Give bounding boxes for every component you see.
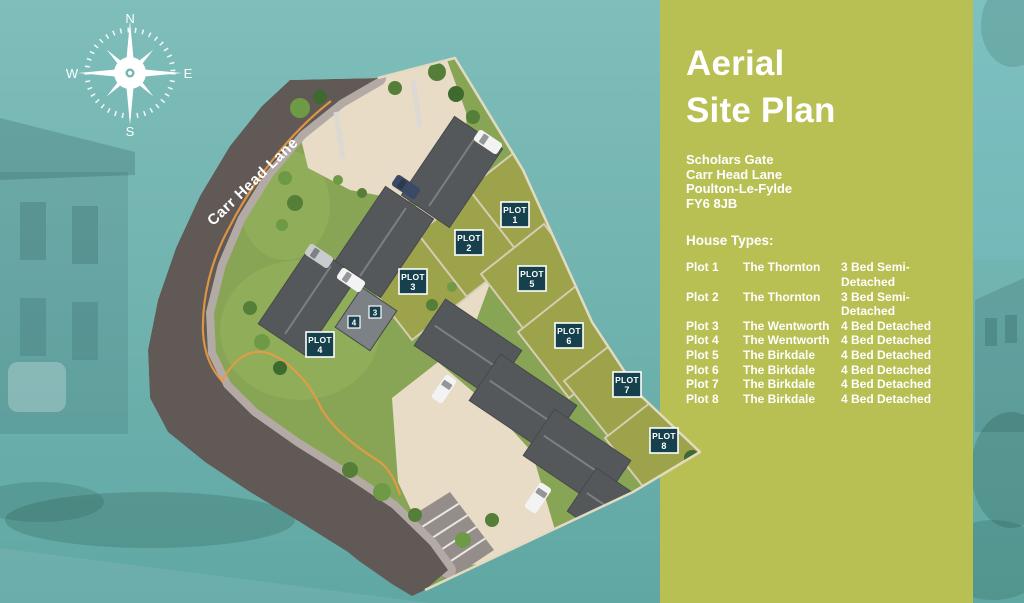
plot-3-mini-badge: 3 xyxy=(369,306,381,318)
svg-text:8: 8 xyxy=(661,441,666,451)
bush xyxy=(448,86,464,102)
bush xyxy=(373,483,391,501)
bush xyxy=(333,175,343,185)
svg-text:4: 4 xyxy=(317,345,322,355)
plot-8-badge: PLOT8 xyxy=(650,428,678,453)
svg-text:PLOT: PLOT xyxy=(401,272,425,282)
bush xyxy=(313,90,327,104)
svg-text:2: 2 xyxy=(466,243,471,253)
compass-south-label: S xyxy=(126,124,135,139)
bush xyxy=(290,98,310,118)
compass-north-label: N xyxy=(125,11,134,26)
bush xyxy=(455,532,471,548)
bush xyxy=(447,282,457,292)
svg-text:PLOT: PLOT xyxy=(503,205,527,215)
compass-star xyxy=(78,21,182,125)
bush xyxy=(254,334,270,350)
bush xyxy=(408,508,422,522)
site-plan-map: N E S W xyxy=(0,0,1024,603)
svg-text:4: 4 xyxy=(352,319,357,328)
bush xyxy=(276,219,288,231)
aerial-site-plan-page: { "colors": { "teal_background": "#72b4b… xyxy=(0,0,1024,603)
plot-4-badge: PLOT4 xyxy=(306,332,334,357)
svg-text:PLOT: PLOT xyxy=(457,233,481,243)
plot-5-badge: PLOT5 xyxy=(518,266,546,291)
bush xyxy=(466,110,480,124)
svg-text:PLOT: PLOT xyxy=(557,326,581,336)
site-area xyxy=(148,58,711,603)
bush xyxy=(287,195,303,211)
plot-1-badge: PLOT1 xyxy=(501,202,529,227)
bush xyxy=(243,301,257,315)
svg-text:1: 1 xyxy=(512,215,517,225)
bush xyxy=(388,81,402,95)
svg-text:PLOT: PLOT xyxy=(520,269,544,279)
plot-2-badge: PLOT2 xyxy=(455,230,483,255)
bush xyxy=(357,188,367,198)
compass-rose: N E S W xyxy=(66,11,193,139)
bush xyxy=(428,63,446,81)
bush xyxy=(273,361,287,375)
svg-text:3: 3 xyxy=(410,282,415,292)
bush xyxy=(426,299,438,311)
compass-west-label: W xyxy=(66,66,79,81)
compass-east-label: E xyxy=(184,66,193,81)
plot-4-mini-badge: 4 xyxy=(348,316,360,328)
plot-3-badge: PLOT3 xyxy=(399,269,427,294)
bush xyxy=(278,171,292,185)
plot-7-badge: PLOT7 xyxy=(613,372,641,397)
bush xyxy=(342,462,358,478)
svg-text:PLOT: PLOT xyxy=(615,375,639,385)
svg-text:6: 6 xyxy=(566,336,571,346)
plot-6-badge: PLOT6 xyxy=(555,323,583,348)
svg-text:PLOT: PLOT xyxy=(652,431,676,441)
svg-text:PLOT: PLOT xyxy=(308,335,332,345)
svg-text:5: 5 xyxy=(529,279,534,289)
svg-text:3: 3 xyxy=(373,309,378,318)
bush xyxy=(485,513,499,527)
svg-text:7: 7 xyxy=(624,385,629,395)
